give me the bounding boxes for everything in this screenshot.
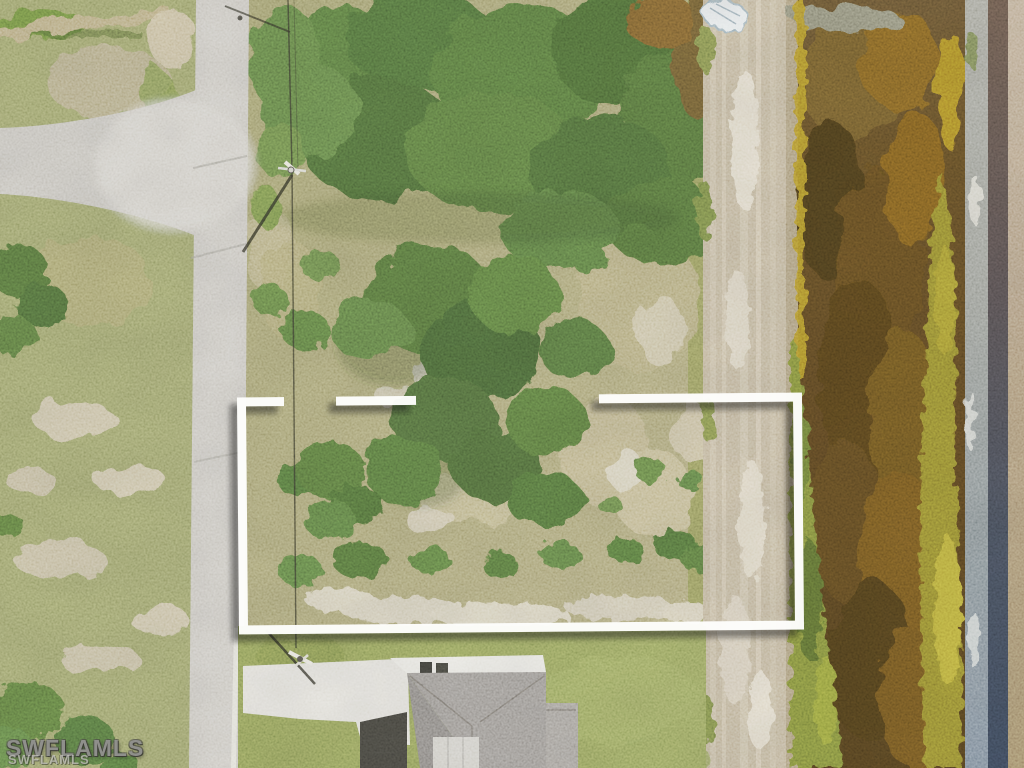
aerial-photo <box>0 0 1024 768</box>
watermark-secondary: SWFLAMLS <box>8 752 90 767</box>
screenshot: SWFLAMLS SWFLAMLS <box>0 0 1024 768</box>
blotch-overlay <box>0 0 1024 768</box>
